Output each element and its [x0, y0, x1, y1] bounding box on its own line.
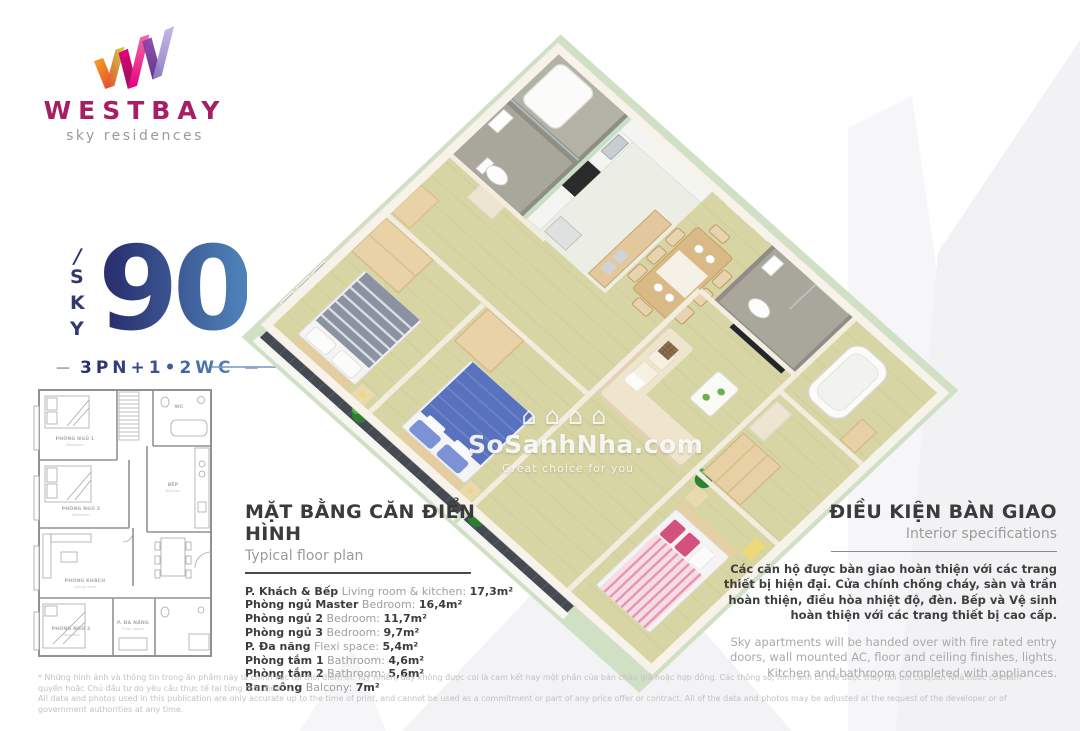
room-area-value: 16,4m² [419, 598, 462, 611]
room-label: PHÒNG NGỦ 1 [56, 434, 95, 442]
room-label: P. ĐA NĂNG [117, 619, 149, 626]
room-name-en: Living room & kitchen: [342, 585, 466, 598]
series-letter: S [70, 268, 85, 287]
room-name-vi: Phòng tắm 1 [245, 654, 324, 667]
house-icons-row: ⌂⌂⌂⌂ [468, 404, 668, 428]
house-icon: ⌂ [591, 402, 614, 430]
disclaimer-en: All data and photos used in this publica… [38, 694, 1046, 715]
handover-body-vi: Các căn hộ được bàn giao hoàn thiện với … [700, 562, 1057, 624]
room-area-row: P. Đa năng Flexi space: 5,4m² [245, 640, 520, 654]
room-label: Kitchen [166, 488, 181, 493]
room-area-value: 11,7m² [383, 612, 426, 625]
house-icon: ⌂ [568, 402, 591, 430]
series-letter: Y [70, 320, 85, 339]
room-name-vi: Phòng ngủ 3 [245, 626, 323, 639]
room-label: PHÒNG NGỦ 2 [62, 504, 101, 512]
room-area-value: 17,3m² [470, 585, 513, 598]
dash-mark: — [56, 360, 70, 376]
room-area-row: P. Khách & Bếp Living room & kitchen: 17… [245, 585, 520, 599]
unit-number: 90 [98, 232, 247, 348]
wardrobe-hatch [119, 392, 139, 440]
slash-mark: / [71, 244, 83, 268]
room-name-en: Bedroom: [327, 626, 380, 639]
room-name-vi: Phòng ngủ 2 [245, 612, 323, 625]
room-label: Bedroom [72, 512, 90, 517]
divider [831, 551, 1057, 552]
section-title-en: Typical floor plan [245, 548, 520, 564]
westbay-logo-mark-icon [70, 22, 200, 94]
room-name-vi: P. Khách & Bếp [245, 585, 338, 598]
room-name-en: Flexi space: [314, 640, 379, 653]
section-title-vi: ĐIỀU KIỆN BÀN GIAO [700, 502, 1057, 524]
room-label: PHÒNG KHÁCH [65, 577, 106, 584]
room-name-vi: Phòng ngủ Master [245, 598, 358, 611]
room-area-row: Phòng tắm 1 Bathroom: 4,6m² [245, 654, 520, 668]
room-label: Living room [74, 584, 97, 589]
room-area-value: 9,7m² [383, 626, 419, 639]
brand-name: WESTBAY [40, 96, 230, 125]
room-area-value: 5,4m² [382, 640, 418, 653]
watermark-slogan: Great choice for you [468, 462, 668, 475]
section-title-en: Interior specifications [700, 526, 1057, 542]
room-label: Bedroom [62, 632, 80, 637]
westbay-logo: WESTBAY sky residences [40, 22, 230, 144]
room-name-en: Bedroom: [327, 612, 380, 625]
interior-walls [39, 390, 211, 656]
series-letter: K [70, 294, 85, 313]
room-label: Bedroom [66, 442, 84, 447]
room-area-row: Phòng ngủ 3 Bedroom: 9,7m² [245, 626, 520, 640]
disclaimer-vi: * Những hình ảnh và thông tin trong ấn p… [38, 673, 1046, 694]
furniture-outlines [43, 396, 211, 650]
floor-plan-2d: PHÒNG NGỦ 1 Bedroom PHÒNG NGỦ 2 Bedroom … [33, 386, 217, 662]
unit-series: S K Y [70, 268, 85, 339]
room-area-value: 4,6m² [388, 654, 424, 667]
room-name-en: Bedroom: [362, 598, 415, 611]
handover-section: ĐIỀU KIỆN BÀN GIAO Interior specificatio… [700, 502, 1057, 681]
house-icon: ⌂ [545, 402, 568, 430]
room-name-vi: P. Đa năng [245, 640, 310, 653]
room-label: WC [175, 404, 184, 410]
house-icon: ⌂ [522, 402, 545, 430]
room-area-row: Phòng ngủ Master Bedroom: 16,4m² [245, 598, 520, 612]
brochure-page: WESTBAY sky residences / S K Y 90 — 3PN+… [0, 0, 1080, 731]
disclaimer: * Những hình ảnh và thông tin trong ấn p… [38, 673, 1046, 715]
room-area-row: Phòng ngủ 2 Bedroom: 11,7m² [245, 612, 520, 626]
room-name-en: Bathroom: [327, 654, 385, 667]
room-label: Flexi space [122, 626, 144, 631]
room-label: BẾP [168, 480, 179, 488]
unit-config: — 3PN+1•2WC — [56, 358, 256, 378]
divider [245, 572, 471, 574]
unit-title-block: / S K Y 90 — 3PN+1•2WC — [56, 246, 256, 386]
unit-config-text: 3PN+1•2WC [80, 358, 235, 378]
section-title-vi: MẶT BẰNG CĂN ĐIỂN HÌNH [245, 502, 520, 546]
brand-tagline: sky residences [40, 128, 230, 144]
typical-plan-section: MẶT BẰNG CĂN ĐIỂN HÌNH Typical floor pla… [245, 502, 520, 695]
room-label: PHÒNG NGỦ 3 [52, 624, 91, 632]
site-watermark: ⌂⌂⌂⌂ SoSanhNha.com Great choice for you [468, 404, 668, 475]
watermark-site-name: SoSanhNha.com [468, 430, 668, 459]
